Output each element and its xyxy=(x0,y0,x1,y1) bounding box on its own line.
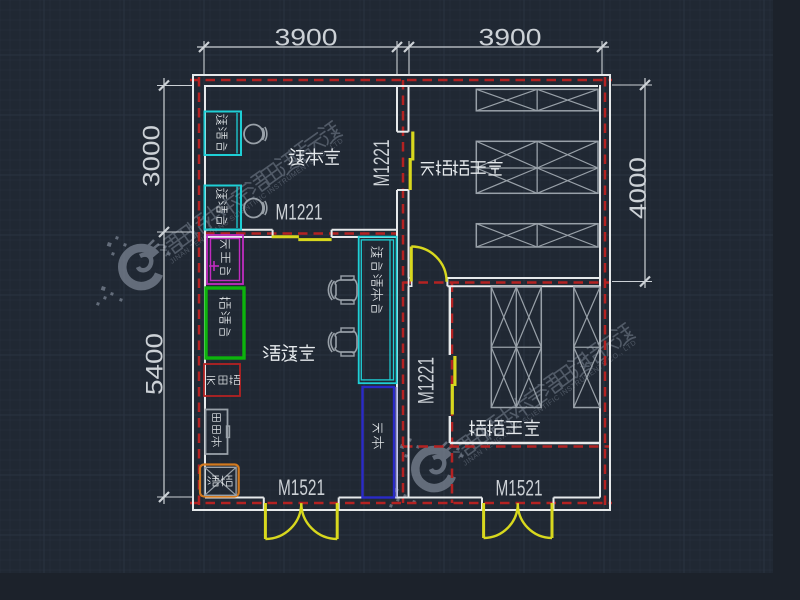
svg-text:M1221: M1221 xyxy=(414,357,439,404)
svg-text:M1521: M1521 xyxy=(496,476,543,501)
svg-text:M1521: M1521 xyxy=(278,475,325,500)
svg-text:3900: 3900 xyxy=(275,25,338,52)
svg-text:M1221: M1221 xyxy=(369,140,394,187)
svg-text:4000: 4000 xyxy=(625,157,652,219)
svg-text:3900: 3900 xyxy=(479,25,542,52)
svg-text:5400: 5400 xyxy=(142,333,169,395)
svg-text:M1221: M1221 xyxy=(276,200,323,225)
svg-text:3000: 3000 xyxy=(139,125,166,187)
